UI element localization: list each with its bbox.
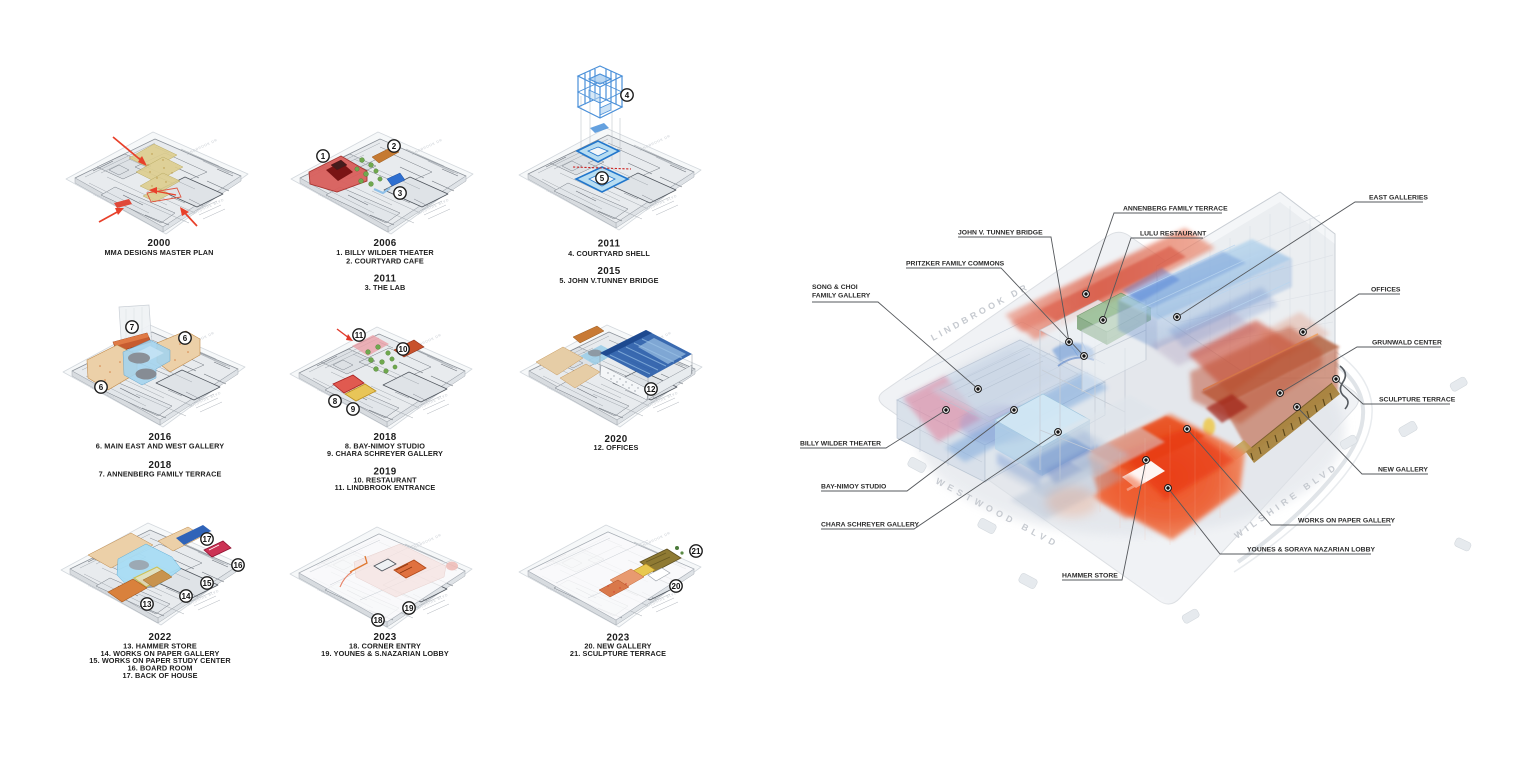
svg-text:11. LINDBROOK ENTRANCE: 11. LINDBROOK ENTRANCE: [335, 483, 436, 492]
svg-text:7: 7: [130, 323, 135, 332]
svg-text:21. SCULPTURE TERRACE: 21. SCULPTURE TERRACE: [570, 649, 666, 658]
svg-text:2: 2: [392, 142, 397, 151]
svg-text:4: 4: [625, 91, 630, 100]
svg-text:4. COURTYARD SHELL: 4. COURTYARD SHELL: [568, 249, 650, 258]
svg-text:12: 12: [647, 385, 656, 394]
svg-text:MMA DESIGNS MASTER PLAN: MMA DESIGNS MASTER PLAN: [104, 248, 213, 257]
svg-text:8: 8: [333, 397, 338, 406]
svg-text:YOUNES & SORAYA NAZARIAN LOBBY: YOUNES & SORAYA NAZARIAN LOBBY: [1247, 547, 1375, 554]
svg-text:10: 10: [399, 345, 408, 354]
svg-text:17. BACK OF HOUSE: 17. BACK OF HOUSE: [122, 671, 197, 680]
svg-text:HAMMER STORE: HAMMER STORE: [1062, 573, 1118, 580]
svg-text:SCULPTURE TERRACE: SCULPTURE TERRACE: [1379, 397, 1456, 404]
svg-text:5: 5: [600, 174, 605, 183]
svg-text:3. THE LAB: 3. THE LAB: [365, 283, 406, 292]
svg-text:19: 19: [405, 604, 414, 613]
svg-text:18: 18: [374, 616, 383, 625]
svg-text:6. MAIN EAST AND WEST GALLERY: 6. MAIN EAST AND WEST GALLERY: [96, 442, 224, 451]
svg-text:GRUNWALD CENTER: GRUNWALD CENTER: [1372, 340, 1442, 347]
svg-text:2. COURTYARD CAFE: 2. COURTYARD CAFE: [346, 257, 424, 266]
svg-text:JOHN V. TUNNEY BRIDGE: JOHN V. TUNNEY BRIDGE: [958, 230, 1043, 237]
svg-text:11: 11: [355, 331, 364, 340]
svg-text:19. YOUNES & S.NAZARIAN LOBBY: 19. YOUNES & S.NAZARIAN LOBBY: [321, 649, 449, 658]
svg-text:17: 17: [203, 535, 212, 544]
svg-text:BAY-NIMOY STUDIO: BAY-NIMOY STUDIO: [821, 484, 886, 491]
svg-text:5. JOHN V.TUNNEY BRIDGE: 5. JOHN V.TUNNEY BRIDGE: [559, 276, 658, 285]
svg-text:2011: 2011: [598, 239, 621, 250]
svg-text:6: 6: [183, 334, 188, 343]
svg-text:6: 6: [99, 383, 104, 392]
svg-text:NEW GALLERY: NEW GALLERY: [1378, 467, 1428, 474]
svg-text:9. CHARA SCHREYER GALLERY: 9. CHARA SCHREYER GALLERY: [327, 449, 443, 458]
svg-text:LULU RESTAURANT: LULU RESTAURANT: [1140, 231, 1207, 238]
svg-text:20: 20: [672, 582, 681, 591]
svg-text:13: 13: [143, 600, 152, 609]
svg-text:SONG & CHOI: SONG & CHOI: [812, 284, 858, 291]
svg-text:9: 9: [351, 405, 356, 414]
svg-text:3: 3: [398, 189, 403, 198]
svg-text:PRITZKER FAMILY COMMONS: PRITZKER FAMILY COMMONS: [906, 261, 1005, 268]
svg-text:15: 15: [203, 579, 212, 588]
svg-text:16: 16: [234, 561, 243, 570]
svg-text:ANNENBERG FAMILY TERRACE: ANNENBERG FAMILY TERRACE: [1123, 206, 1228, 213]
svg-text:12. OFFICES: 12. OFFICES: [594, 443, 639, 452]
svg-text:WORKS ON PAPER GALLERY: WORKS ON PAPER GALLERY: [1298, 518, 1396, 525]
svg-text:21: 21: [692, 547, 701, 556]
svg-text:CHARA SCHREYER GALLERY: CHARA SCHREYER GALLERY: [821, 522, 920, 529]
svg-text:7. ANNENBERG FAMILY TERRACE: 7. ANNENBERG FAMILY TERRACE: [99, 470, 222, 479]
svg-text:OFFICES: OFFICES: [1371, 287, 1401, 294]
svg-text:1: 1: [321, 152, 326, 161]
svg-text:FAMILY GALLERY: FAMILY GALLERY: [812, 293, 871, 300]
svg-text:BILLY WILDER THEATER: BILLY WILDER THEATER: [800, 441, 881, 448]
svg-text:14: 14: [182, 592, 191, 601]
svg-text:EAST GALLERIES: EAST GALLERIES: [1369, 195, 1428, 202]
